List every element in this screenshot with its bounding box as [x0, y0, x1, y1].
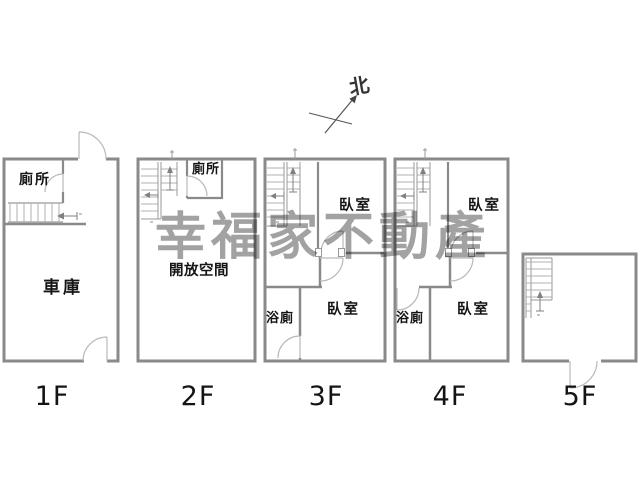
north-arrow-icon — [309, 95, 357, 133]
doors-2f-icon — [187, 176, 207, 196]
floor-label-3f: 3F — [309, 383, 344, 410]
floor-label-4f: 4F — [433, 383, 468, 410]
stairs-1f-icon — [8, 203, 63, 222]
room-label-bath-3f: 浴廁 — [266, 312, 294, 325]
room-label-garage-1f: 車庫 — [43, 280, 83, 297]
floor-label-1f: 1F — [35, 383, 70, 410]
floor-plan-canvas: 幸福家不動產 北 廁所 車庫 廁所 開放空間 臥室 浴廁 臥室 臥室 浴廁 臥室… — [0, 0, 640, 480]
unit-5f — [523, 254, 636, 388]
room-label-toilet-1f: 廁所 — [19, 173, 51, 187]
walls-1f — [4, 159, 118, 361]
doors-1f-icon — [45, 132, 107, 361]
room-label-open-space-2f: 開放空間 — [169, 264, 229, 279]
floor-label-5f: 5F — [563, 383, 598, 410]
floor-label-2f: 2F — [181, 383, 216, 410]
unit-1f — [4, 132, 118, 361]
room-label-bedroom-bottom-4f: 臥室 — [457, 303, 490, 318]
room-label-bedroom-top-3f: 臥室 — [339, 199, 372, 214]
room-label-bedroom-bottom-3f: 臥室 — [327, 303, 360, 318]
stair-arrow-5f-icon — [536, 291, 544, 316]
stair-arrow-1f-icon — [57, 212, 82, 220]
room-label-toilet-2f: 廁所 — [192, 163, 220, 176]
watermark-text: 幸福家不動產 — [155, 212, 491, 263]
stairs-5f-icon — [526, 258, 552, 318]
room-label-bedroom-top-4f: 臥室 — [468, 199, 501, 214]
room-label-bath-4f: 浴廁 — [396, 312, 424, 325]
